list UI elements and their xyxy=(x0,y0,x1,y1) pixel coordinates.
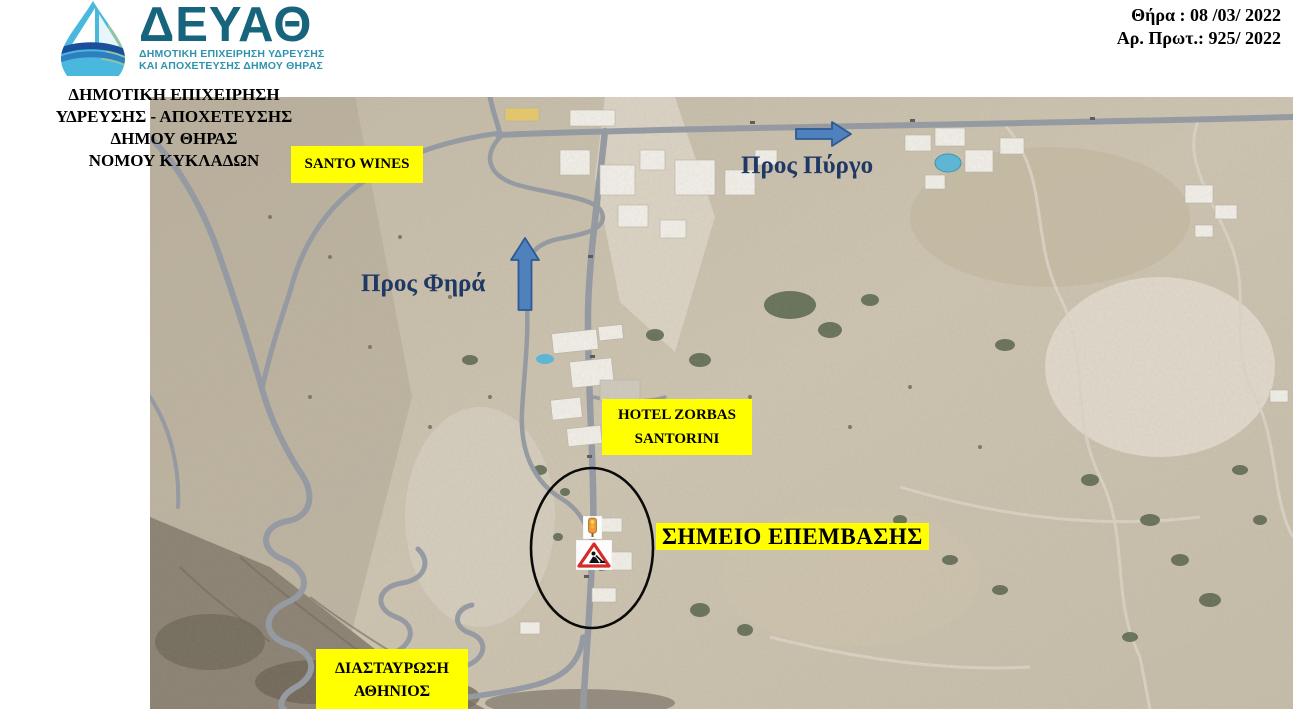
pros-pyrgo-label: Προς Πύργο xyxy=(741,151,873,181)
arrow-up-icon xyxy=(510,237,540,311)
logo-subtitle-line2: ΚΑΙ ΑΠΟΧΕΤΕΥΣΗΣ ΔΗΜΟΥ ΘΗΡΑΣ xyxy=(139,60,324,72)
logo-subtitle-line1: ΔΗΜΟΤΙΚΗ ΕΠΙΧΕΙΡΗΣΗ ΥΔΡΕΥΣΗΣ xyxy=(139,48,324,60)
traffic-light-icon xyxy=(583,516,602,539)
hotel-label-line1: HOTEL ZORBAS xyxy=(602,403,752,427)
document-page: { "header": { "logo": { "acronym": "ΔΕΥΑ… xyxy=(0,0,1293,709)
satellite-map: SANTO WINES HOTEL ZORBAS SANTORINI ΣΗΜΕΙ… xyxy=(150,97,1293,709)
org-line-3: ΔΗΜΟΥ ΘΗΡΑΣ xyxy=(28,128,320,150)
org-line-1: ΔΗΜΟΤΙΚΗ ΕΠΙΧΕΙΡΗΣΗ xyxy=(28,84,320,106)
athinios-junction-label: ΔΙΑΣΤΑΥΡΩΣΗ ΑΘΗΝΙΟΣ xyxy=(316,649,468,709)
arrow-right-icon xyxy=(795,121,853,147)
date-protocol-block: Θήρα : 08 /03/ 2022 Αρ. Πρωτ.: 925/ 2022 xyxy=(1117,4,1281,50)
deyath-logo: ΔΕΥΑΘ ΔΗΜΟΤΙΚΗ ΕΠΙΧΕΙΡΗΣΗ ΥΔΡΕΥΣΗΣ ΚΑΙ Α… xyxy=(55,0,324,76)
junction-label-line1: ΔΙΑΣΤΑΥΡΩΣΗ xyxy=(316,657,468,680)
hotel-label-line2: SANTORINI xyxy=(602,427,752,451)
water-drop-icon xyxy=(55,0,131,76)
protocol-number: Αρ. Πρωτ.: 925/ 2022 xyxy=(1117,27,1281,50)
org-line-4: ΝΟΜΟΥ ΚΥΚΛΑΔΩΝ xyxy=(28,150,320,172)
roadworks-sign-icon xyxy=(576,540,612,570)
org-line-2: ΥΔΡΕΥΣΗΣ - ΑΠΟΧΕΤΕΥΣΗΣ xyxy=(28,106,320,128)
hotel-zorbas-label: HOTEL ZORBAS SANTORINI xyxy=(602,399,752,455)
place-date: Θήρα : 08 /03/ 2022 xyxy=(1117,4,1281,27)
logo-acronym: ΔΕΥΑΘ xyxy=(139,2,324,48)
organization-title: ΔΗΜΟΤΙΚΗ ΕΠΙΧΕΙΡΗΣΗ ΥΔΡΕΥΣΗΣ - ΑΠΟΧΕΤΕΥΣ… xyxy=(28,84,320,172)
junction-label-line2: ΑΘΗΝΙΟΣ xyxy=(316,680,468,703)
intervention-point-label: ΣΗΜΕΙΟ ΕΠΕΜΒΑΣΗΣ xyxy=(656,523,929,550)
pros-fira-label: Προς Φηρά xyxy=(361,269,485,299)
